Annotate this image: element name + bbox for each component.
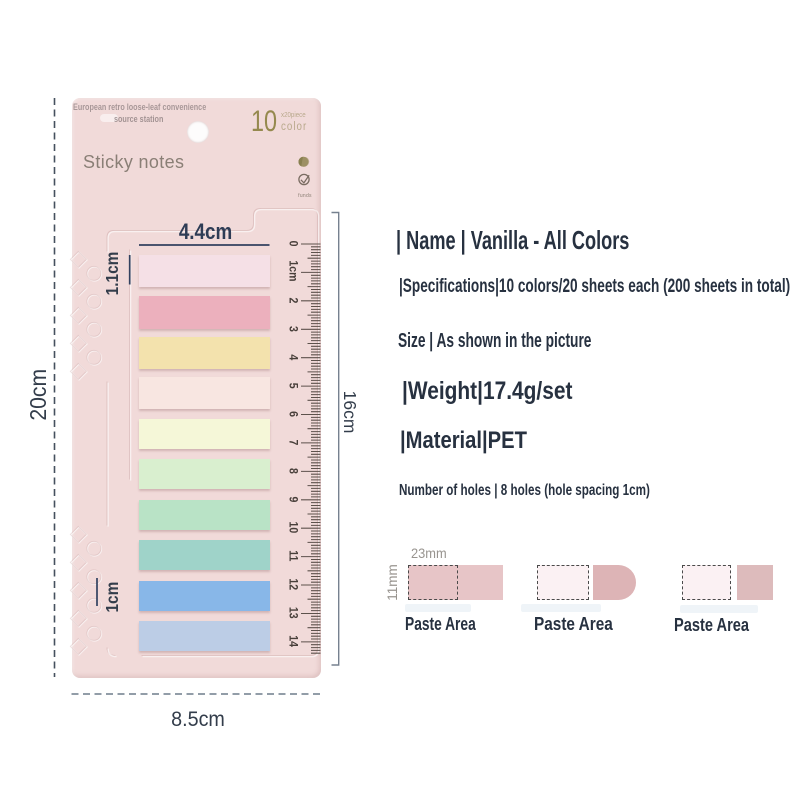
svg-text:funds: funds	[298, 193, 312, 199]
